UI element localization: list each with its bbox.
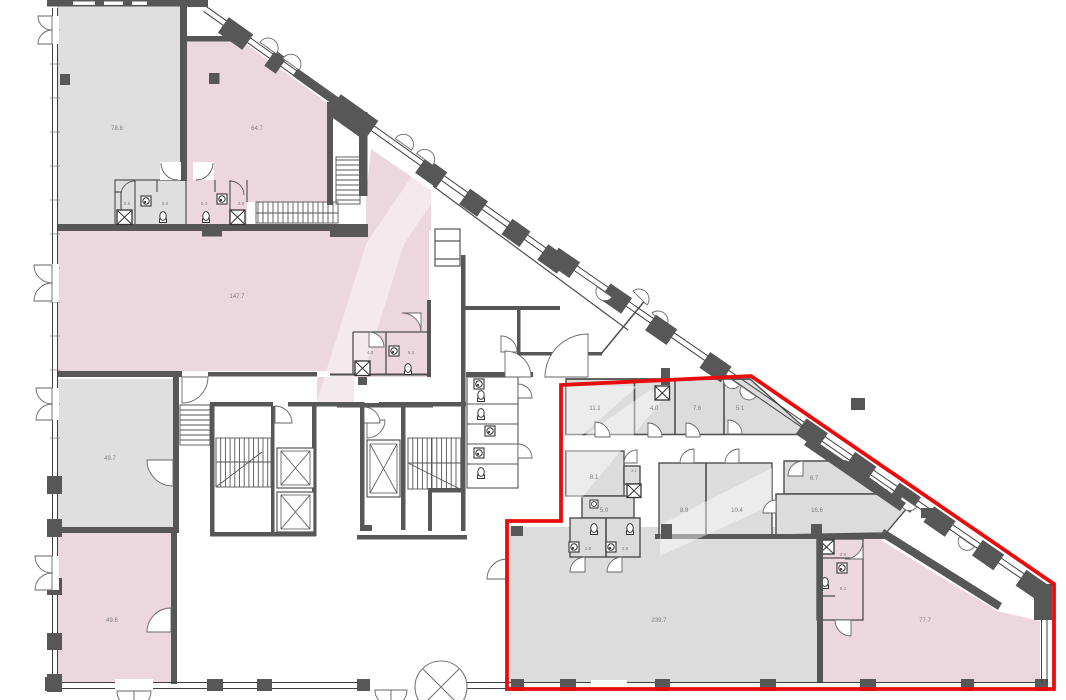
svg-text:5.1: 5.1 xyxy=(736,406,745,412)
svg-text:8.1: 8.1 xyxy=(590,475,599,481)
svg-text:49.7: 49.7 xyxy=(104,456,116,462)
svg-text:77.7: 77.7 xyxy=(919,618,931,624)
svg-text:2.9: 2.9 xyxy=(238,201,245,206)
svg-text:8.9: 8.9 xyxy=(680,508,689,514)
svg-text:2.8: 2.8 xyxy=(622,546,629,551)
svg-text:147.7: 147.7 xyxy=(229,294,245,300)
svg-text:11.1: 11.1 xyxy=(589,406,601,412)
svg-text:49.6: 49.6 xyxy=(106,618,118,624)
svg-text:2.1: 2.1 xyxy=(631,468,637,473)
svg-text:5.3: 5.3 xyxy=(162,201,169,206)
svg-text:239.7: 239.7 xyxy=(651,618,667,624)
svg-text:5.3: 5.3 xyxy=(840,586,847,591)
svg-text:10.4: 10.4 xyxy=(731,508,743,514)
svg-text:4.0: 4.0 xyxy=(650,406,659,412)
svg-text:2.9: 2.9 xyxy=(840,552,847,557)
svg-text:5.3: 5.3 xyxy=(201,201,208,206)
svg-text:78.8: 78.8 xyxy=(111,126,123,132)
svg-text:4.0: 4.0 xyxy=(367,350,374,355)
svg-text:5.3: 5.3 xyxy=(408,350,415,355)
svg-text:16.6: 16.6 xyxy=(811,508,823,514)
svg-text:2.8: 2.8 xyxy=(585,546,592,551)
svg-text:2.9: 2.9 xyxy=(124,201,131,206)
svg-text:5.0: 5.0 xyxy=(600,508,609,514)
svg-text:6.7: 6.7 xyxy=(810,476,819,482)
svg-text:64.7: 64.7 xyxy=(251,126,263,132)
svg-text:7.6: 7.6 xyxy=(693,406,702,412)
